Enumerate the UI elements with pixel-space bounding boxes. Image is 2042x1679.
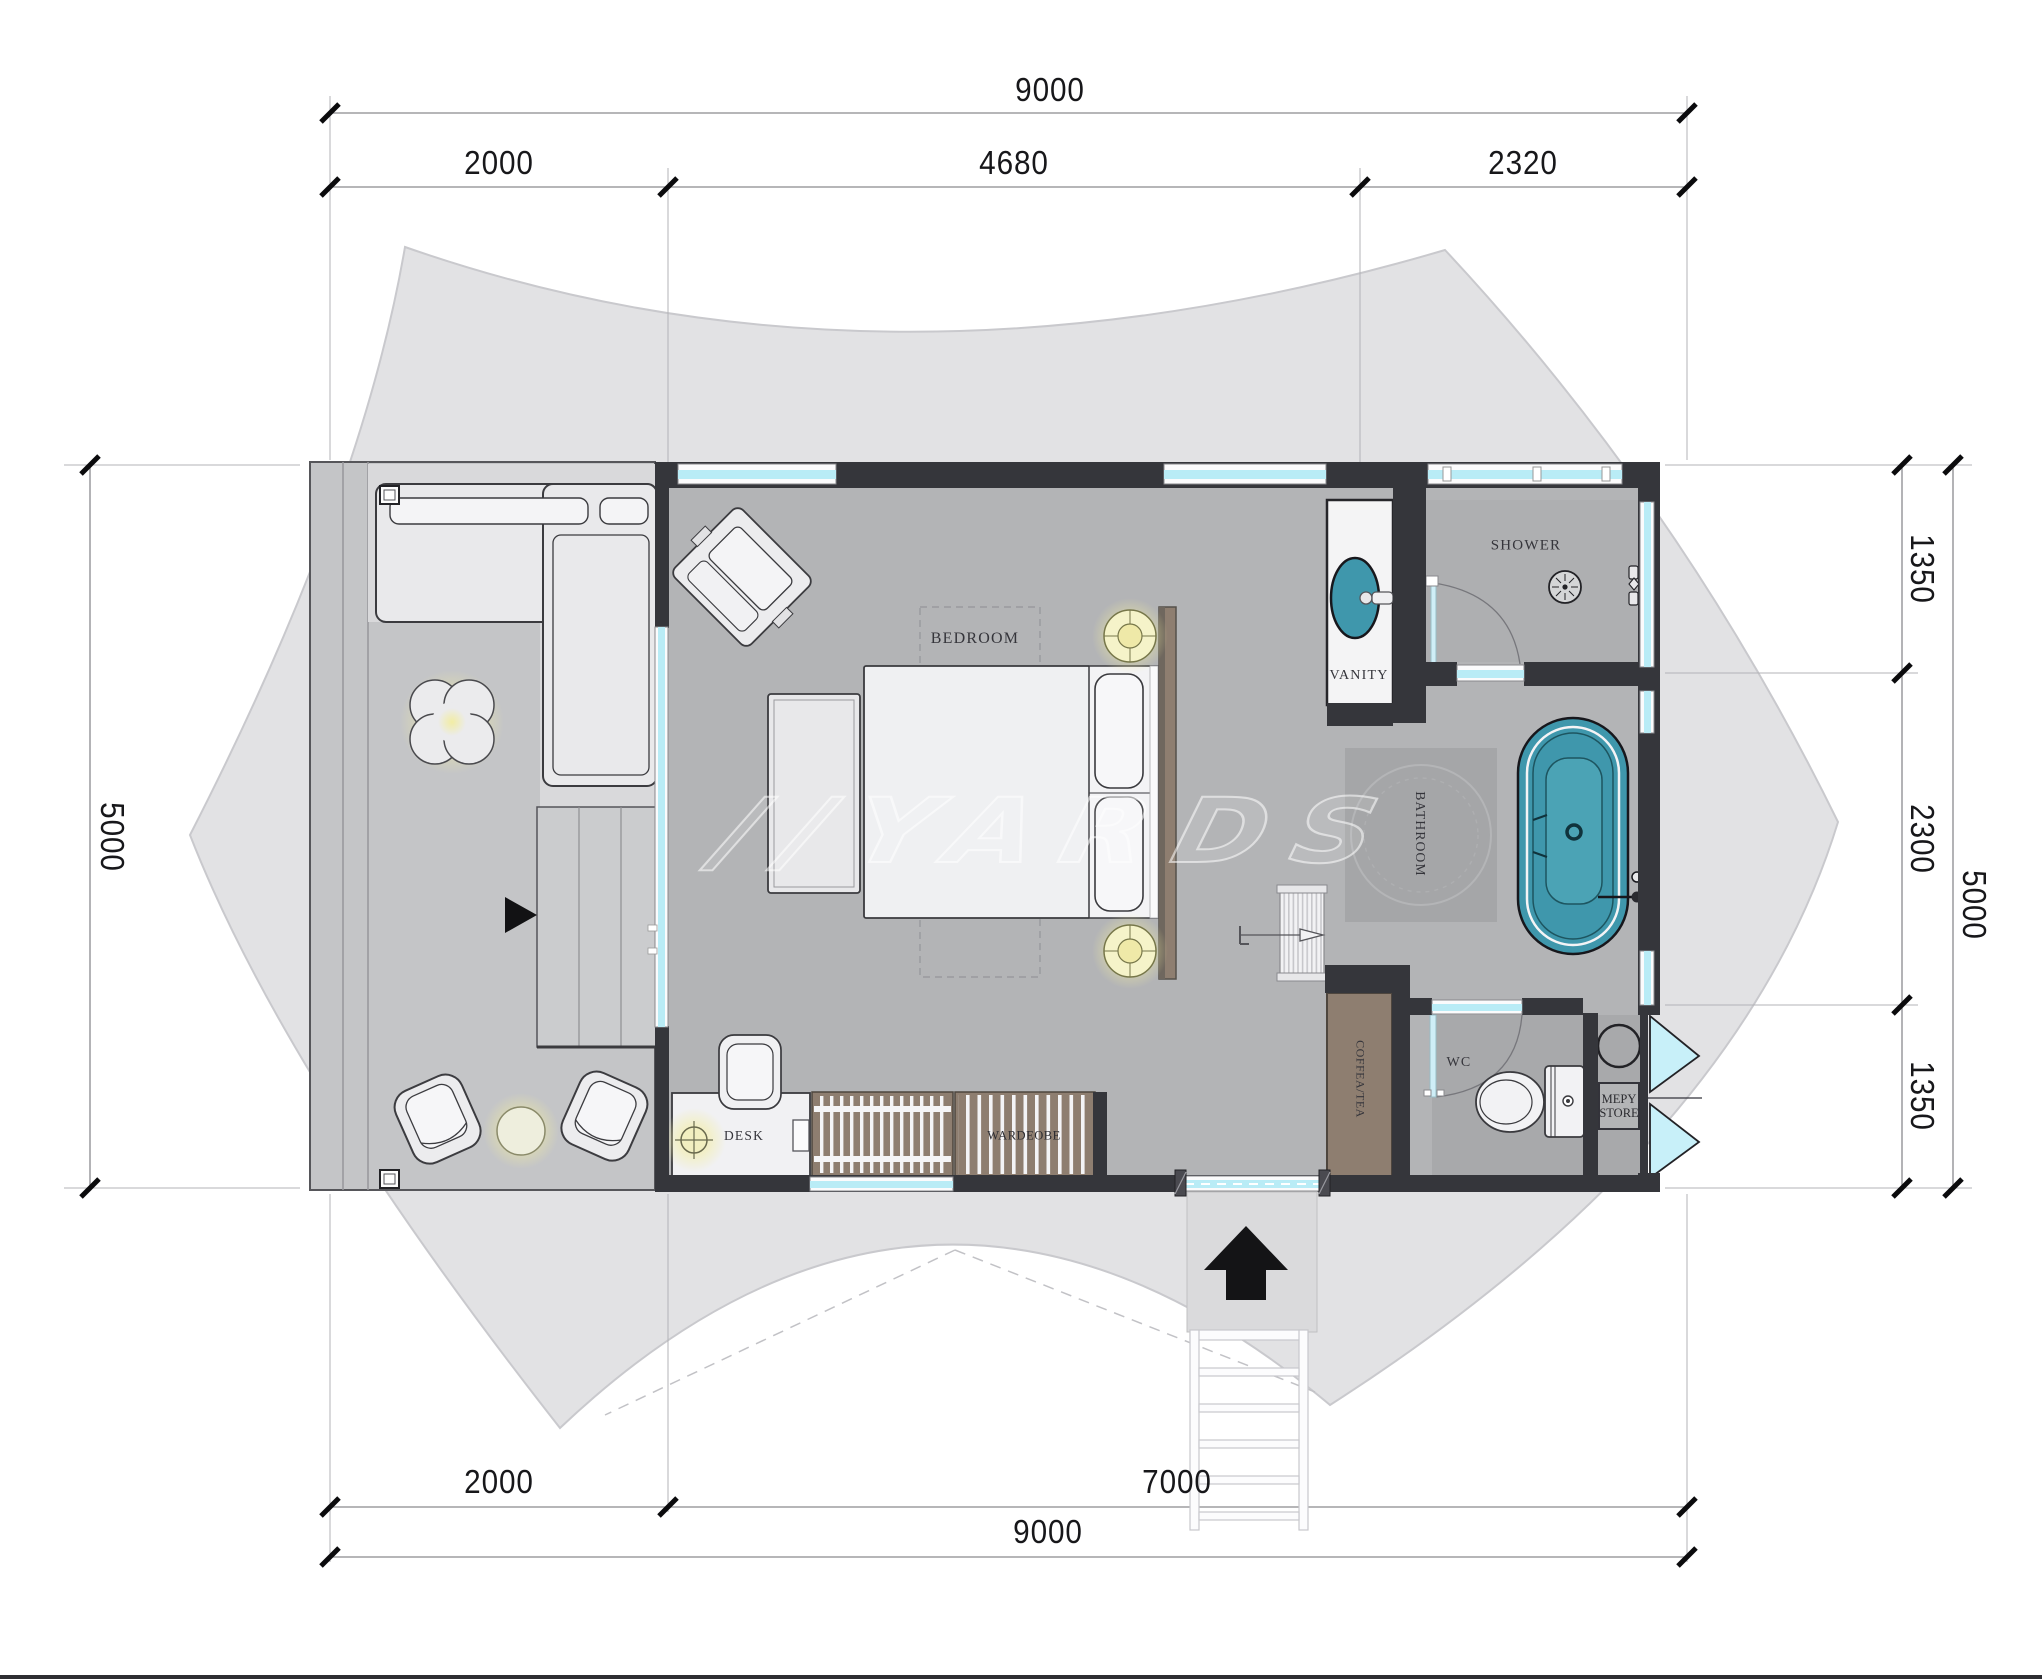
dim-top-seg-3: 2320 bbox=[1488, 144, 1558, 182]
pillow bbox=[1095, 674, 1143, 788]
bedside-lamp-bottom bbox=[1092, 913, 1168, 989]
dim-top-seg-2: 4680 bbox=[979, 144, 1049, 182]
dim-bottom-seg-2: 7000 bbox=[1142, 1463, 1212, 1501]
deck-flower-table bbox=[400, 670, 504, 774]
vanity-faucet bbox=[1372, 592, 1393, 604]
shower-head-icon bbox=[1549, 571, 1581, 603]
bathtub bbox=[1518, 718, 1643, 954]
bedside-lamp-top bbox=[1092, 598, 1168, 674]
dim-right-seg-1: 1350 bbox=[1903, 534, 1941, 604]
toilet bbox=[1476, 1066, 1584, 1137]
dim-left-total: 5000 bbox=[93, 802, 131, 872]
room-label-bathroom: BATHROOM bbox=[1412, 791, 1428, 876]
dim-top-seg-1: 2000 bbox=[464, 144, 534, 182]
dim-bottom-total: 9000 bbox=[1013, 1513, 1083, 1551]
deck-side-table bbox=[483, 1093, 559, 1169]
mep-store-line1: MEPY bbox=[1602, 1092, 1637, 1106]
dim-top-total: 9000 bbox=[1015, 71, 1085, 109]
shower-room bbox=[1426, 500, 1639, 666]
mep-store-line2: STORE bbox=[1599, 1106, 1638, 1120]
room-label-wc: WC bbox=[1447, 1055, 1472, 1071]
dim-right-total: 5000 bbox=[1955, 870, 1993, 940]
room-label-bedroom: BEDROOM bbox=[931, 630, 1019, 648]
page-bottom-rule bbox=[0, 1675, 2042, 1679]
floor-plan-page: //YARDS BEDROOM VANITY SHOWER BATHROOM W… bbox=[0, 0, 2042, 1679]
dim-right-seg-3: 1350 bbox=[1903, 1061, 1941, 1131]
desk-chair bbox=[719, 1035, 781, 1109]
room-label-shower: SHOWER bbox=[1491, 538, 1562, 555]
water-heater-icon bbox=[1598, 1025, 1640, 1067]
shower-valves bbox=[1629, 566, 1639, 605]
room-label-coffee-tea: COFFEA/TEA bbox=[1353, 1040, 1368, 1118]
luggage-rack bbox=[812, 1092, 953, 1177]
dim-right-seg-2: 2300 bbox=[1903, 804, 1941, 874]
room-label-desk: DESK bbox=[724, 1128, 764, 1144]
shower-door bbox=[1431, 583, 1436, 666]
wc-door bbox=[1430, 1015, 1436, 1097]
wc-room bbox=[1424, 1015, 1584, 1175]
shower-glass-top bbox=[1428, 464, 1622, 484]
dim-bottom-seg-1: 2000 bbox=[464, 1463, 534, 1501]
room-label-vanity: VANITY bbox=[1329, 668, 1388, 684]
watermark-logo: //YARDS bbox=[660, 792, 1461, 875]
room-label-wardrobe: WARDEOBE bbox=[987, 1129, 1060, 1144]
room-label-mep-store: MEPY STORE bbox=[1599, 1083, 1639, 1129]
